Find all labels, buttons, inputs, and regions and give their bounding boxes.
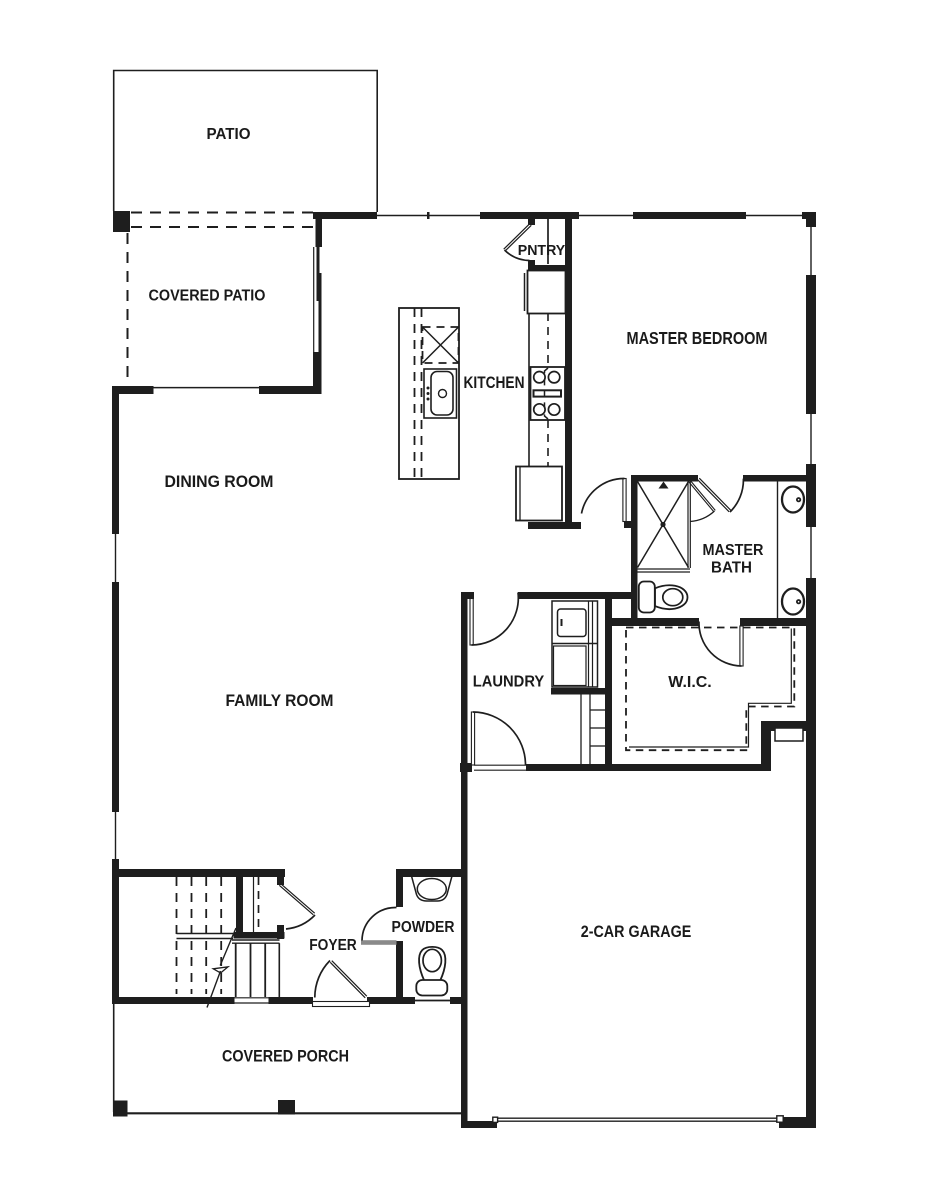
svg-text:COVERED PORCH: COVERED PORCH <box>222 1048 349 1066</box>
svg-text:FOYER: FOYER <box>309 937 357 954</box>
svg-text:2-CAR GARAGE: 2-CAR GARAGE <box>581 923 692 941</box>
svg-text:KITCHEN: KITCHEN <box>464 374 525 392</box>
svg-text:MASTER: MASTER <box>703 542 764 559</box>
svg-text:POWDER: POWDER <box>392 919 455 936</box>
svg-text:COVERED PATIO: COVERED PATIO <box>149 288 266 305</box>
svg-text:LAUNDRY: LAUNDRY <box>473 674 545 691</box>
svg-text:MASTER BEDROOM: MASTER BEDROOM <box>627 328 768 348</box>
svg-text:FAMILY ROOM: FAMILY ROOM <box>226 692 334 710</box>
svg-text:PNTRY: PNTRY <box>518 242 566 259</box>
svg-text:PATIO: PATIO <box>207 126 251 143</box>
svg-text:W.I.C.: W.I.C. <box>668 674 712 691</box>
svg-text:DINING ROOM: DINING ROOM <box>165 473 274 491</box>
svg-text:BATH: BATH <box>711 560 752 577</box>
